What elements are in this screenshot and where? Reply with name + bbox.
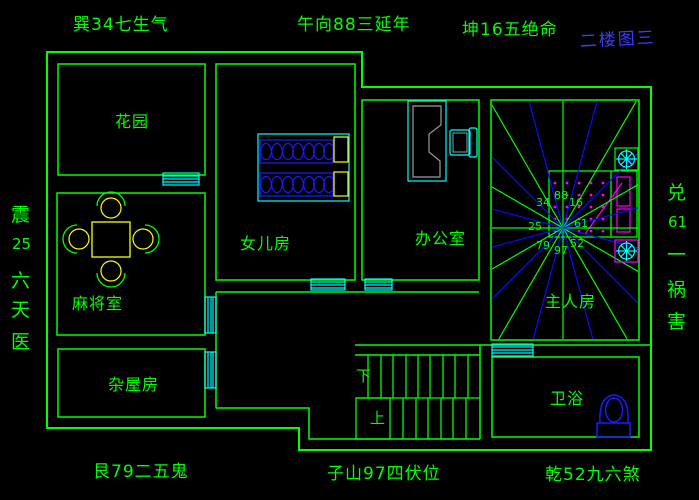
label-bottom-right: 乾52九六煞 <box>545 465 641 485</box>
desk-icon <box>408 101 446 181</box>
pillow-icon <box>334 172 348 196</box>
label-left-4: 天 <box>11 299 30 321</box>
label-right-1: 兑 <box>667 182 686 204</box>
room-label-daughter: 女儿房 <box>240 234 291 253</box>
bathroom-window-icon <box>492 344 533 356</box>
room-label-storage: 杂屋房 <box>108 375 159 394</box>
label-right-5: 害 <box>667 311 686 333</box>
room-mahjong-wall <box>57 193 205 335</box>
floorplan-drawing: 巽34七生气 午向88三延年 坤16五绝命 二楼图三 艮79二五鬼 子山97四伏… <box>0 0 699 500</box>
stairs-down-label: 下 <box>356 367 371 385</box>
label-top-right: 坤16五绝命 <box>462 20 558 40</box>
room-label-mahjong: 麻将室 <box>72 294 123 313</box>
light-symbol-top <box>615 148 638 170</box>
room-label-garden: 花园 <box>115 112 149 131</box>
label-left-5: 医 <box>11 331 30 353</box>
stool-icon <box>133 229 153 249</box>
pillow-icon <box>334 137 348 162</box>
stool-icon <box>101 198 121 218</box>
label-left-2: 25 <box>12 235 31 253</box>
room-label-master: 主人房 <box>545 292 596 311</box>
storage-door-icon <box>205 352 216 388</box>
stairs-up-label: 上 <box>370 409 385 427</box>
floor-title: 二楼图三 <box>579 28 656 52</box>
room-label-bathroom: 卫浴 <box>550 389 584 408</box>
room-office-wall <box>362 100 479 280</box>
compass-num-sw: 79 <box>536 239 550 252</box>
mahjong-door-icon <box>205 297 216 333</box>
twin-beds-icon <box>258 134 349 201</box>
label-right-4: 祸 <box>667 279 686 301</box>
label-bottom-left: 艮79二五鬼 <box>93 462 189 482</box>
compass-num-se: 52 <box>570 237 584 250</box>
label-top-left: 巽34七生气 <box>73 15 169 35</box>
stool-icon <box>101 261 121 281</box>
room-label-office: 办公室 <box>415 229 466 248</box>
label-bottom-center: 子山97四伏位 <box>327 464 441 484</box>
compass-num-nw: 34 <box>536 196 550 209</box>
compass-num-e: 61 <box>574 217 588 230</box>
office-chair-icon <box>450 128 477 157</box>
label-left-1: 震 <box>11 204 30 226</box>
stool-icon <box>69 229 89 249</box>
toilet-icon <box>597 395 630 437</box>
floorplan-canvas[interactable]: 巽34七生气 午向88三延年 坤16五绝命 二楼图三 艮79二五鬼 子山97四伏… <box>0 0 699 500</box>
chair-back-arcs <box>63 192 159 287</box>
label-right-3: 一 <box>667 244 686 266</box>
label-left-3: 六 <box>11 270 30 292</box>
pillow-icon <box>617 177 630 206</box>
label-right-2: 61 <box>668 213 687 231</box>
compass-num-n: 88 <box>554 189 568 202</box>
compass-num-w: 25 <box>528 220 542 233</box>
label-top-center: 午向88三延年 <box>297 15 411 35</box>
compass-num-s: 97 <box>554 244 568 257</box>
mahjong-table-icon <box>63 192 159 287</box>
compass-num-ne: 16 <box>569 196 583 209</box>
